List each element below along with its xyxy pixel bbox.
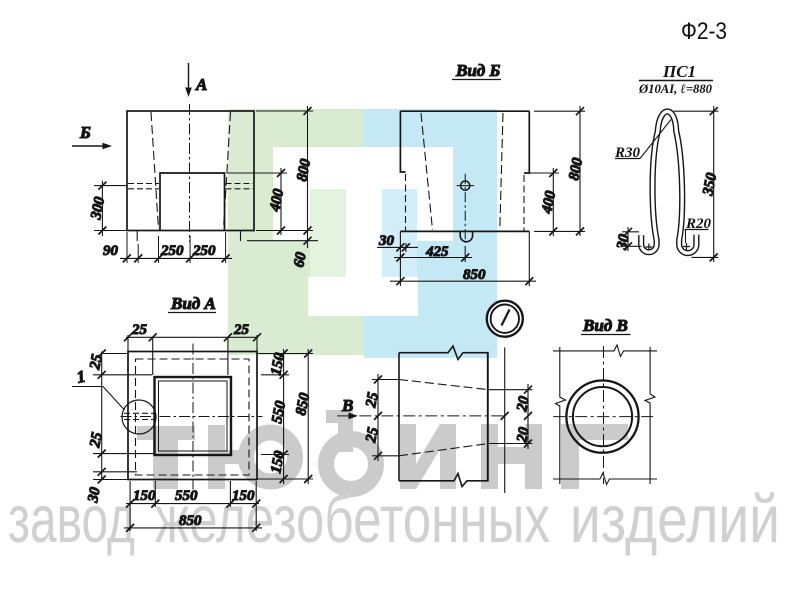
svg-text:300: 300 — [88, 195, 108, 222]
svg-text:Б: Б — [79, 123, 91, 142]
svg-text:20: 20 — [514, 394, 533, 413]
svg-text:850: 850 — [179, 513, 202, 529]
svg-text:Вид Б: Вид Б — [455, 61, 500, 80]
svg-text:60: 60 — [291, 250, 310, 268]
svg-text:400: 400 — [267, 187, 287, 214]
svg-text:30: 30 — [85, 485, 104, 504]
svg-text:425: 425 — [425, 244, 449, 260]
svg-text:А: А — [195, 75, 207, 94]
svg-text:25: 25 — [87, 352, 106, 371]
svg-text:90: 90 — [103, 243, 119, 259]
svg-text:550: 550 — [175, 488, 198, 504]
svg-text:25: 25 — [233, 322, 250, 338]
svg-text:850: 850 — [463, 267, 486, 283]
svg-text:400: 400 — [539, 189, 559, 216]
svg-text:ПС1: ПС1 — [662, 62, 696, 81]
svg-text:800: 800 — [566, 156, 586, 182]
svg-text:350: 350 — [700, 171, 720, 198]
svg-text:150: 150 — [268, 449, 288, 475]
svg-text:25: 25 — [363, 390, 382, 409]
svg-text:Ф2-3: Ф2-3 — [681, 18, 727, 45]
svg-text:150: 150 — [133, 488, 156, 504]
svg-text:Вид В: Вид В — [582, 316, 628, 335]
svg-text:250: 250 — [160, 243, 184, 259]
svg-text:20: 20 — [514, 425, 533, 444]
svg-text:800: 800 — [294, 157, 314, 183]
svg-text:25: 25 — [87, 430, 106, 449]
svg-text:30: 30 — [614, 232, 633, 251]
svg-text:850: 850 — [293, 391, 313, 417]
svg-text:1: 1 — [75, 367, 87, 387]
svg-text:250: 250 — [192, 243, 216, 259]
svg-text:Вид А: Вид А — [170, 294, 216, 313]
svg-text:В: В — [341, 396, 353, 415]
svg-text:150: 150 — [232, 488, 255, 504]
svg-text:30: 30 — [378, 233, 395, 249]
svg-text:25: 25 — [131, 322, 148, 338]
svg-text:Ø10AI, ℓ=880: Ø10AI, ℓ=880 — [638, 81, 712, 96]
svg-text:550: 550 — [269, 399, 289, 425]
svg-text:25: 25 — [363, 425, 382, 444]
